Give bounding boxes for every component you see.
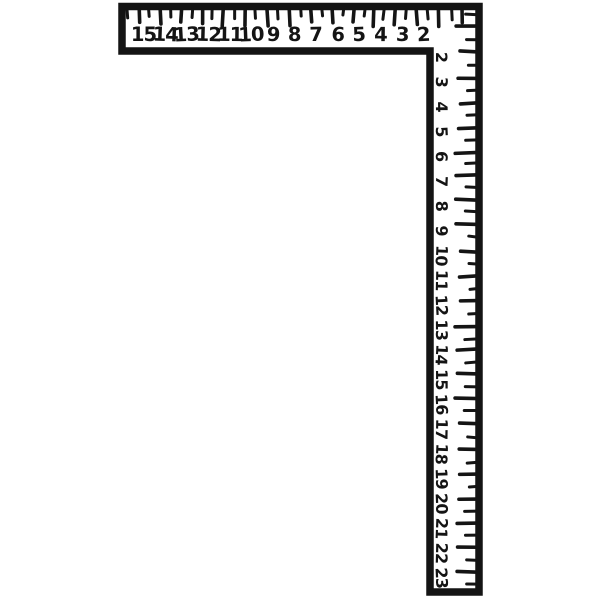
inch-label-vertical: 9 [432,225,451,237]
inch-label-vertical: 17 [432,418,451,439]
inch-label-vertical: 18 [432,443,452,465]
tick-mark [457,571,478,572]
tick-mark [469,486,478,487]
tick-mark [127,10,128,18]
inch-label-vertical: 21 [432,517,452,539]
tick-mark [456,224,478,225]
tick-mark [470,288,478,289]
inch-label-horizontal: 4 [374,23,387,46]
tick-mark [457,373,478,374]
inch-label-vertical: 13 [432,319,451,340]
tick-mark [149,10,150,17]
tick-mark [460,423,478,424]
tick-mark [255,10,256,19]
tick-mark [277,10,278,19]
tick-mark [467,560,478,561]
tick-mark [160,10,161,24]
inch-label-horizontal: 6 [331,23,345,47]
tick-mark [468,90,478,91]
tick-mark [322,10,323,16]
tick-mark [456,175,478,176]
tick-mark [466,14,478,15]
inch-label-horizontal: 10 [238,22,265,46]
tick-mark [459,128,478,129]
framing-square-graphic: 15141312111098765432 2345678910111213141… [0,0,600,600]
inch-label-horizontal: 2 [416,23,430,47]
inch-label-vertical: 6 [432,151,451,162]
tick-mark [343,10,344,16]
inch-label-vertical: 7 [432,175,451,186]
inch-label-vertical: 19 [432,468,452,490]
tick-mark [427,10,428,19]
tick-mark [332,10,333,23]
tick-mark [364,10,365,17]
tick-mark [455,152,478,153]
tick-mark [452,10,453,20]
inch-label-horizontal: 3 [396,23,410,46]
tick-mark [468,437,478,438]
inch-label-vertical: 16 [431,393,451,415]
inch-label-vertical: 15 [432,369,451,390]
inch-label-horizontal: 7 [309,23,323,46]
tick-mark [181,10,182,22]
inch-label-vertical: 12 [431,294,451,316]
tick-mark [460,51,478,52]
tick-mark [466,187,478,188]
tick-mark [465,339,478,340]
tick-mark [469,236,478,237]
tick-mark [469,314,478,315]
tick-mark [456,199,478,200]
inch-label-vertical: 2 [432,52,451,62]
vertical-arm-labels: 234567891011121314151617181920212223 [431,52,451,589]
inch-label-vertical: 11 [432,270,451,292]
tick-mark [460,276,478,277]
tick-mark [469,263,478,264]
inch-label-vertical: 8 [432,200,451,212]
illustration-canvas: 15141312111098765432 2345678910111213141… [0,0,600,600]
tick-mark [192,10,193,18]
inch-label-vertical: 4 [432,101,451,112]
tick-mark [353,10,354,22]
tick-mark [467,115,478,116]
square-outline [122,7,479,593]
tick-mark [467,462,478,463]
inch-label-horizontal: 9 [266,23,280,47]
inch-label-horizontal: 5 [352,23,366,47]
tick-mark [394,10,395,25]
inch-label-vertical: 23 [432,567,452,589]
tick-mark [311,10,312,22]
tick-mark [466,163,478,164]
tick-mark [465,211,478,212]
inch-label-vertical: 10 [432,245,452,267]
inch-label-vertical: 20 [432,493,452,515]
inch-label-vertical: 3 [432,76,452,87]
tick-mark [466,362,478,363]
tick-mark [406,10,407,19]
inch-label-vertical: 14 [431,344,451,366]
tick-mark [383,10,384,20]
tick-mark [461,251,478,252]
inch-label-vertical: 22 [432,542,452,563]
tick-mark [460,103,478,104]
tick-mark [457,349,478,350]
inch-label-horizontal: 8 [288,23,301,46]
tick-mark [416,10,417,25]
inch-label-vertical: 5 [432,126,452,138]
